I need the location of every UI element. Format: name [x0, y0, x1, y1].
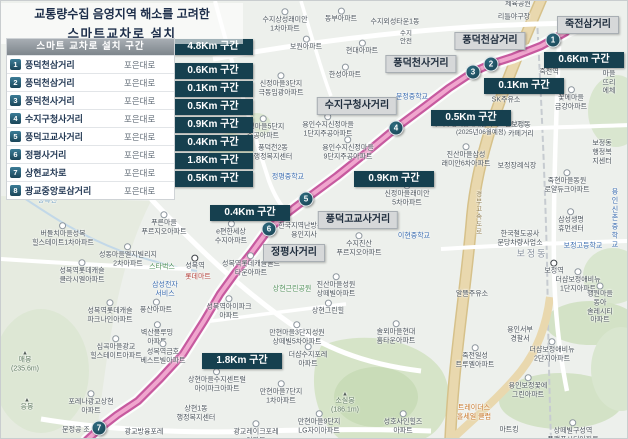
table-header: 스마트 교차로 설치 구간	[7, 39, 174, 55]
map-label: 상떼빌구성역 플랫폼시티아파트	[547, 419, 599, 439]
table-row: 4 수지구청사거리 포은대로	[7, 109, 174, 127]
row-intersection-name: 풍덕천삼거리	[25, 76, 124, 89]
row-road-name: 포은대로	[124, 131, 174, 143]
map-label: 죽현마을동원 로얄듀크아파트	[544, 169, 589, 195]
map-label: 보정동 행정복지센터	[590, 140, 615, 166]
row-intersection-name: 상현교차로	[25, 166, 124, 179]
map-label: SK주유소	[492, 97, 521, 106]
map-label: 한국철도공사 분당차량사업소	[497, 230, 542, 248]
route-marker: 2	[484, 57, 499, 72]
map-label: 성복역금호 베스트빌아파트	[140, 340, 185, 366]
map-canvas: 체육공원리틀야구장수지상성래미안 1차아파트동부아파트수지외성타운1동보원아파트…	[0, 0, 628, 439]
map-label: 삼성전자 서비스	[152, 281, 178, 299]
map-label: 롯데마트	[185, 274, 211, 283]
table-body: 1 풍덕천삼거리 포은대로 2 풍덕천삼거리 포은대로 3 풍덕천사거리 포은대…	[7, 55, 174, 199]
map-label: 용인수지신정마을 9단지주공아파트	[322, 136, 374, 162]
row-intersection-name: 풍덕천사거리	[25, 94, 124, 107]
map-label: 광교레이크포레 아파트	[233, 420, 278, 439]
intersection-label: 정평사거리	[263, 244, 325, 262]
map-label: 풍덕천2동 행정복지센터	[254, 144, 293, 162]
map-label: 상현1동 행정복지센터	[177, 405, 216, 423]
map-label: 리틀야구장	[498, 14, 530, 23]
row-number-badge: 1	[10, 59, 21, 70]
row-intersection-name: 수지구청사거리	[25, 112, 124, 125]
distance-badge: 0.9Km 구간	[354, 171, 434, 187]
segment-distance-badge: 0.1Km 구간	[173, 81, 253, 97]
map-label: 트레이더스 홀세일 클럽	[457, 404, 491, 422]
map-label: 만현마을7단지 1차아파트	[260, 380, 303, 406]
map-label: 성복역롯데캐슬 클라시엘아파트	[59, 259, 104, 285]
map-label: 보정고등학교	[564, 243, 603, 252]
map-label: 한성아파트	[329, 64, 361, 81]
row-intersection-name: 풍덕고교사거리	[25, 130, 124, 143]
intersection-label: 풍덕고교사거리	[318, 211, 398, 229]
segment-distance-badge: 0.9Km 구간	[173, 117, 253, 133]
map-label: 진산마을삼성 래미안6차아파트	[442, 143, 491, 169]
map-label: 경부고속도로	[473, 191, 481, 236]
map-label: 광교방융포레	[125, 429, 164, 438]
map-label: 문정공 조	[62, 427, 90, 436]
map-label: 행원마을동아 솔레시티아파트	[587, 283, 614, 326]
route-marker-number: 5	[304, 195, 308, 204]
row-intersection-name: 정평사거리	[25, 148, 124, 161]
map-label: 죽전일성 트루엘아파트	[456, 344, 495, 370]
row-intersection-name: 풍덕천삼거리	[25, 58, 124, 71]
row-road-name: 포은대로	[124, 59, 174, 71]
route-marker: 5	[299, 192, 314, 207]
map-label: 푸른마을 푸르지오아파트	[141, 211, 186, 237]
map-label: 포레나광교상현 아파트	[68, 390, 113, 416]
map-label: 성호사인힐즈 아파트	[384, 410, 423, 436]
intersection-label: 풍덕천삼거리	[454, 32, 525, 50]
route-marker-number: 6	[267, 225, 271, 234]
route-marker-number: 7	[97, 424, 101, 433]
route-marker: 7	[92, 421, 107, 436]
distance-badge: 0.5Km 구간	[431, 110, 511, 126]
segment-distance-badge: 1.8Km 구간	[173, 153, 253, 169]
map-label: 이현중학교	[398, 233, 430, 242]
table-row: 8 광교중앙로삼거리 포은대로	[7, 181, 174, 199]
map-label: 용인신촌 중학교	[609, 188, 621, 249]
map-label: 삼성생명 휴먼센터	[558, 208, 584, 234]
map-label: 더샵수지포레 아파트	[289, 343, 328, 369]
table-row: 5 풍덕고교사거리 포은대로	[7, 127, 174, 145]
map-label: 풍산아파트	[140, 299, 172, 316]
row-number-badge: 5	[10, 131, 21, 142]
map-label: 진산마을성원 상떼빌아파트	[317, 273, 356, 299]
map-label: 보원아파트	[290, 36, 322, 53]
table-row: 2 풍덕천삼거리 포은대로	[7, 73, 174, 91]
map-label: 동부아파트	[325, 8, 357, 25]
row-road-name: 포은대로	[124, 113, 174, 125]
row-number-badge: 6	[10, 149, 21, 160]
table-row: 3 풍덕천사거리 포은대로	[7, 91, 174, 109]
row-number-badge: 2	[10, 77, 21, 88]
map-label: 상현그린힐	[312, 300, 344, 317]
map-label: 수지상성래미안 1차아파트	[262, 8, 307, 34]
map-label: 매봉 (235.6m)	[11, 350, 39, 374]
row-road-name: 포은대로	[124, 95, 174, 107]
map-label: 마트킹	[499, 427, 518, 436]
row-number-badge: 7	[10, 167, 21, 178]
map-label: 수지외성타운1동	[371, 19, 420, 28]
route-marker-number: 2	[489, 60, 493, 69]
map-label: 버들치마을성복 힐스테이트1차아파트	[32, 222, 94, 248]
map-label: 용인수지신정마을 1단지주공아파트	[302, 113, 354, 139]
map-label: 상현마을수지센트럴 아이파크아파트	[188, 368, 246, 394]
map-label: 심곡마을광교 힐스테이트아파트	[90, 335, 142, 361]
map-label: 체육공원	[505, 1, 531, 10]
map-label: 보정장례식장	[498, 163, 537, 172]
map-label: e편한세상 수지아파트	[215, 220, 247, 246]
map-label: 현대아파트	[346, 40, 378, 57]
distance-badge: 0.4Km 구간	[210, 205, 290, 221]
row-road-name: 포은대로	[124, 167, 174, 179]
map-label: 스타벅스	[149, 264, 175, 273]
map-label: 응봉	[21, 398, 34, 413]
distance-badge: 0.1Km 구간	[484, 78, 564, 94]
map-label: 성복역롯데캐슬 파크나인아파트	[87, 299, 132, 325]
distance-badge: 0.6Km 구간	[544, 52, 624, 68]
route-marker: 6	[262, 222, 277, 237]
row-number-badge: 8	[10, 185, 21, 196]
smart-intersection-table: 스마트 교차로 설치 구간 1 풍덕천삼거리 포은대로 2 풍덕천삼거리 포은대…	[6, 38, 175, 200]
route-marker-number: 3	[471, 68, 475, 77]
map-label: 문정중학교	[396, 94, 428, 103]
map-label: 신정마을3단지 극동임광아파트	[258, 72, 303, 98]
table-row: 6 정평사거리 포은대로	[7, 145, 174, 163]
route-marker: 1	[546, 33, 561, 48]
title-line1: 교통량수집 음영지역 해소를 고려한	[1, 5, 243, 22]
segment-distance-badge: 0.5Km 구간	[173, 171, 253, 187]
row-number-badge: 3	[10, 95, 21, 106]
distance-badge: 1.8Km 구간	[202, 353, 282, 369]
map-label: 보정동	[517, 248, 548, 259]
intersection-label: 죽전삼거리	[557, 16, 619, 34]
segment-distance-badge: 0.4Km 구간	[173, 135, 253, 151]
map-label: 보정동 카페거리	[508, 121, 534, 139]
intersection-label: 풍덕천사거리	[385, 55, 456, 73]
map-label: 용인보정꽃에 그린아파트	[509, 374, 548, 400]
row-road-name: 포은대로	[124, 149, 174, 161]
map-label: 수지진산 푸르지오아파트	[336, 232, 381, 258]
row-number-badge: 4	[10, 113, 21, 124]
route-marker: 4	[389, 121, 404, 136]
route-marker: 3	[466, 65, 481, 80]
row-road-name: 포은대로	[124, 77, 174, 89]
map-label: 만현마을9단지 LG자이아파트	[298, 410, 341, 436]
intersection-label: 수지구청사거리	[317, 97, 397, 115]
map-label: 상현근린공원	[273, 286, 312, 295]
row-intersection-name: 광교중앙로삼거리	[25, 184, 124, 197]
row-road-name: 포은대로	[124, 185, 174, 197]
map-label: 알뜰주유소	[456, 291, 488, 300]
map-label: 솔뫼마을현대 홈타운아파트	[377, 320, 416, 346]
map-label: 성복역	[185, 255, 204, 272]
route-marker-number: 1	[551, 36, 555, 45]
segment-distance-badge: 0.6Km 구간	[173, 63, 253, 79]
map-label: 성복역아이파크 아파트	[206, 295, 251, 321]
map-label: 수지 안전	[400, 30, 412, 46]
map-label: 정평중학교	[272, 174, 304, 183]
table-row: 1 풍덕천삼거리 포은대로	[7, 55, 174, 73]
segment-distance-badge: 0.5Km 구간	[173, 99, 253, 115]
route-marker-number: 4	[394, 124, 398, 133]
map-label: 더샵보정애비뉴 2단지아파트	[529, 338, 574, 364]
table-row: 7 상현교차로 포은대로	[7, 163, 174, 181]
